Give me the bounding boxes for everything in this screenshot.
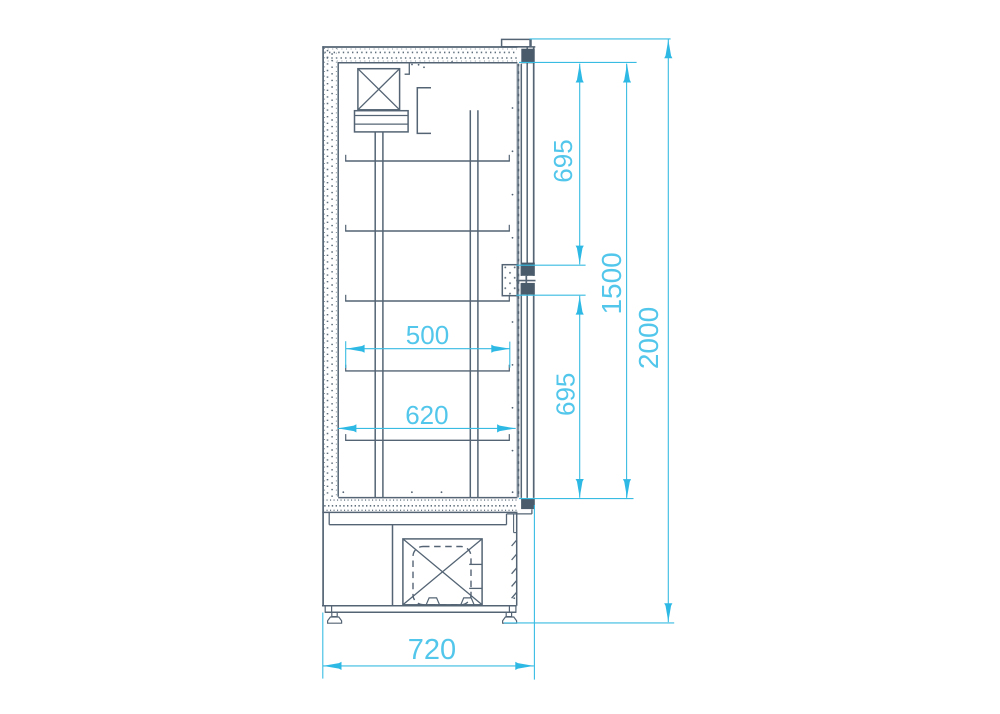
svg-text:695: 695 xyxy=(550,373,580,416)
svg-text:620: 620 xyxy=(405,400,448,430)
svg-text:2000: 2000 xyxy=(633,307,664,369)
svg-text:500: 500 xyxy=(406,320,449,350)
svg-text:695: 695 xyxy=(548,139,578,182)
svg-text:720: 720 xyxy=(408,634,456,666)
svg-text:1500: 1500 xyxy=(596,252,627,314)
